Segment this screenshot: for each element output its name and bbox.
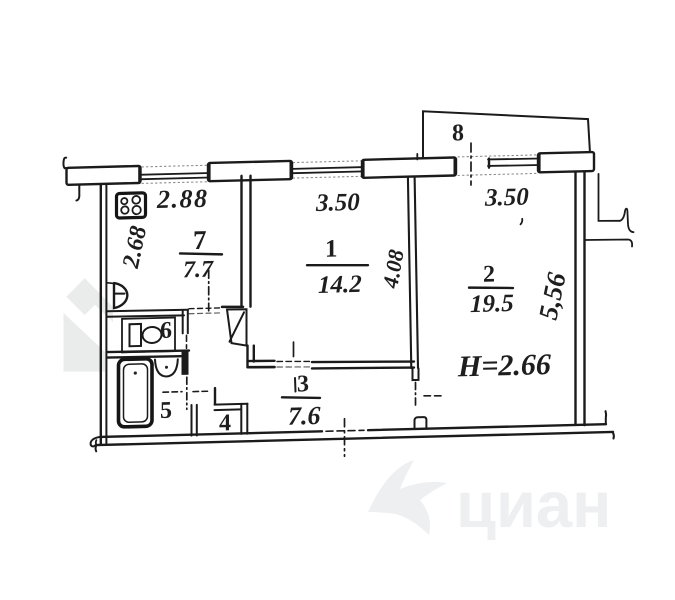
- svg-text:8: 8: [452, 120, 464, 146]
- svg-text:2.88: 2.88: [156, 184, 209, 214]
- svg-text:6: 6: [160, 318, 172, 344]
- svg-text:циан: циан: [456, 468, 611, 541]
- svg-text:7.6: 7.6: [288, 401, 320, 431]
- svg-text:2: 2: [483, 261, 495, 287]
- svg-text:5: 5: [160, 398, 172, 424]
- svg-text:3: 3: [297, 371, 309, 397]
- svg-text:7.7: 7.7: [183, 257, 214, 284]
- svg-text:3.50: 3.50: [484, 184, 529, 212]
- svg-text:7: 7: [193, 225, 206, 255]
- svg-text:1: 1: [325, 235, 337, 262]
- svg-text:3.50: 3.50: [315, 189, 360, 217]
- svg-text:H=2.66: H=2.66: [457, 348, 551, 383]
- svg-text:19.5: 19.5: [470, 290, 514, 318]
- svg-text:14.2: 14.2: [318, 271, 362, 299]
- svg-text:4: 4: [219, 410, 231, 436]
